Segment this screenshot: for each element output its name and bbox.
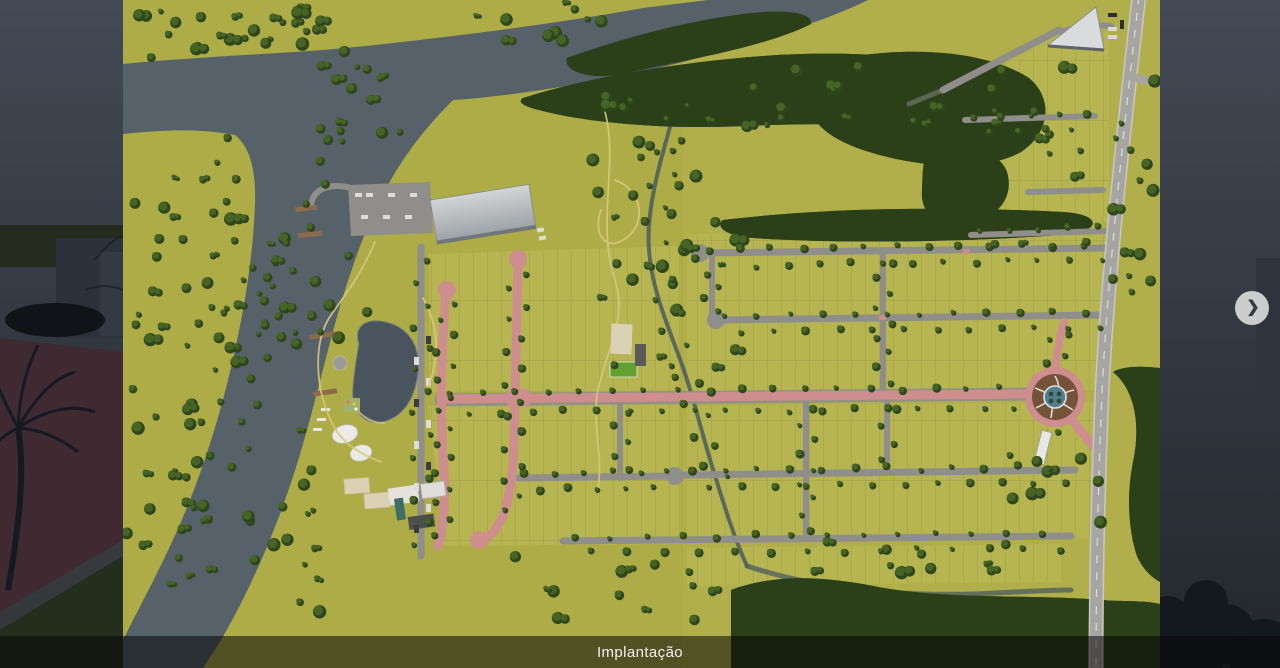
park-building bbox=[635, 344, 646, 366]
culdesac bbox=[707, 311, 725, 329]
chevron-right-icon: ❯ bbox=[1246, 300, 1259, 316]
parking-lot bbox=[348, 182, 433, 236]
next-image-button[interactable]: ❯ bbox=[1235, 291, 1269, 325]
masterplan-image bbox=[123, 0, 1160, 668]
masterplan-render bbox=[123, 0, 1160, 668]
playground bbox=[344, 398, 360, 412]
sand-court bbox=[610, 324, 632, 355]
image-caption: Implantação bbox=[597, 644, 683, 661]
parked-car-silhouette bbox=[5, 303, 105, 337]
caption-bar: Implantação bbox=[0, 636, 1280, 668]
round-plaza bbox=[333, 356, 347, 370]
fountain bbox=[1044, 386, 1066, 408]
lightbox: Implantação ❯ bbox=[0, 0, 1280, 668]
